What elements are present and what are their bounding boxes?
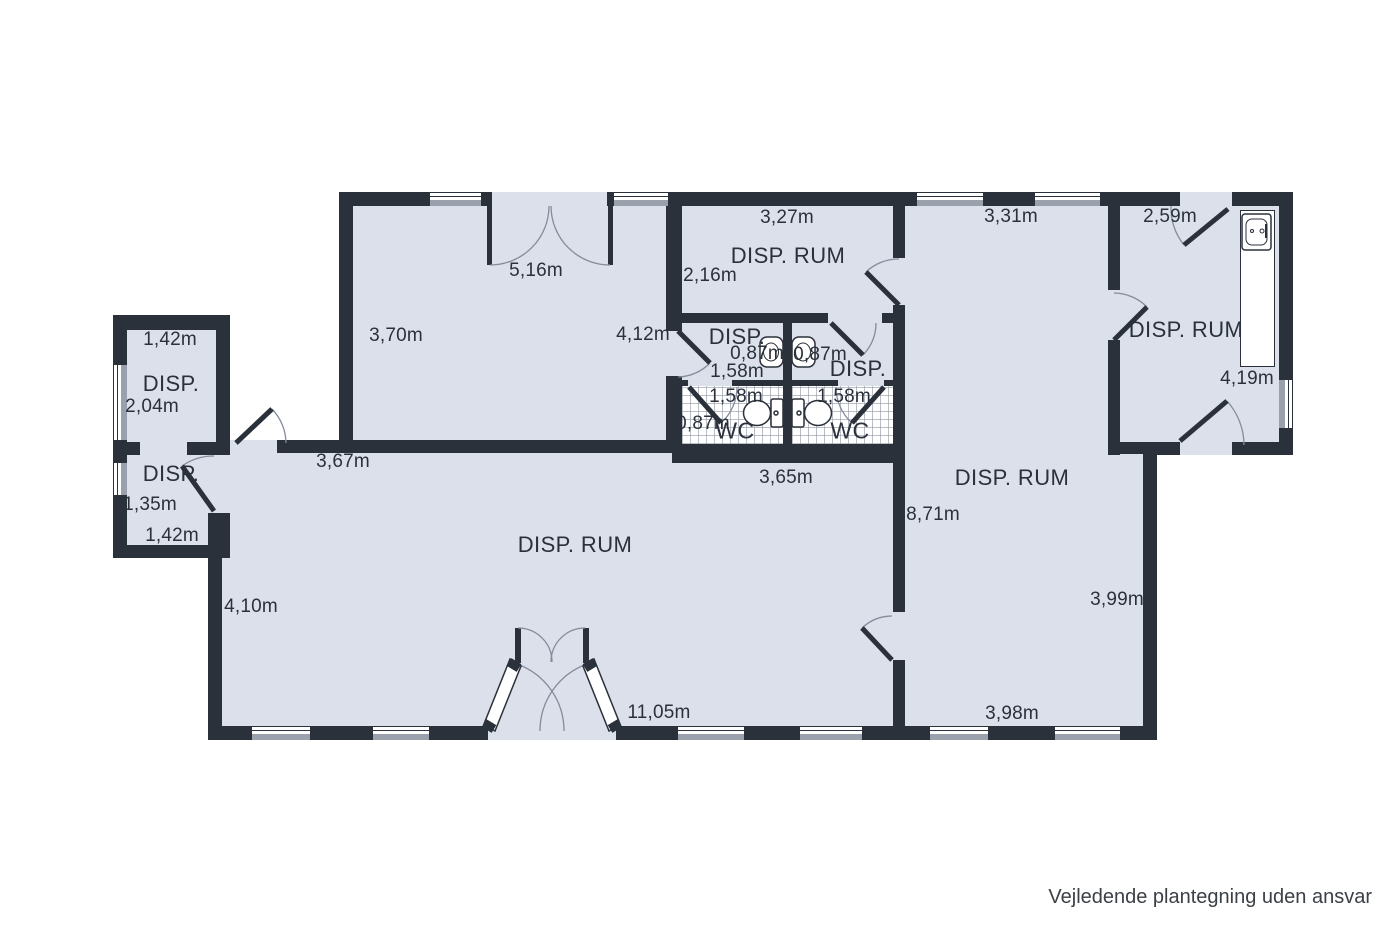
door-opening <box>1108 290 1120 340</box>
dim-wc-left-depth: 1,58m <box>709 386 763 408</box>
wall <box>113 440 127 463</box>
counter <box>1240 210 1275 367</box>
dim-annex1-width: 1,42m <box>143 329 197 351</box>
door-leaf-open <box>487 206 492 265</box>
dim-vest-left-depth: 1,58m <box>710 361 764 383</box>
wall <box>127 442 140 455</box>
wall <box>339 192 353 453</box>
dim-hall-door: 5,16m <box>509 260 563 282</box>
window <box>113 463 127 495</box>
wall <box>783 386 792 444</box>
dim-wc-bottom: 3,65m <box>759 467 813 489</box>
wall <box>680 192 905 206</box>
dim-tr-right: 4,19m <box>1220 368 1274 390</box>
window <box>1055 726 1120 740</box>
door-opening <box>1180 192 1232 206</box>
window <box>614 192 668 206</box>
door-opening <box>492 192 607 206</box>
dim-main-bottom: 11,05m <box>627 702 690 724</box>
wall <box>187 442 230 455</box>
dim-mid-left: 2,16m <box>683 265 737 287</box>
window <box>678 726 744 740</box>
dim-hall-bottom: 3,67m <box>316 451 370 473</box>
door-opening <box>1180 442 1232 455</box>
window <box>800 726 862 740</box>
dim-annex2-width: 1,42m <box>145 525 199 547</box>
dim-wc-right-depth: 1,58m <box>817 386 871 408</box>
room-label-top-right: DISP. RUM <box>1129 317 1243 343</box>
door-post <box>583 628 589 663</box>
room-label-wc-left: WC <box>715 418 754 445</box>
window <box>917 192 983 206</box>
door-post <box>515 628 521 663</box>
wall <box>216 315 230 455</box>
dim-hall-right: 4,12m <box>616 324 670 346</box>
dim-right-right: 3,99m <box>1090 589 1144 611</box>
dim-right-bottom: 3,98m <box>985 703 1039 725</box>
dim-annex1-height: 2,04m <box>125 396 179 418</box>
dim-main-left: 4,10m <box>224 596 278 618</box>
wall <box>208 513 222 740</box>
wall <box>680 313 828 323</box>
window <box>430 192 481 206</box>
wall <box>783 323 792 386</box>
room-label-right: DISP. RUM <box>955 465 1069 491</box>
wall <box>113 315 230 330</box>
dim-right-left: 8,71m <box>906 504 960 526</box>
window <box>1035 192 1100 206</box>
room-label-annex1: DISP. <box>143 371 200 397</box>
window <box>1279 380 1293 428</box>
disclaimer-text: Vejledende plantegning uden ansvar <box>1048 886 1372 909</box>
floor-plan: 1,42m DISP. 2,04m DISP. 1,35m 1,42m 5,16… <box>0 0 1400 933</box>
wall <box>1143 442 1157 740</box>
dim-right-top: 3,31m <box>984 206 1038 228</box>
room-label-vest-right: DISP. <box>830 356 887 382</box>
door-leaf-open <box>608 206 613 265</box>
entrance-opening <box>488 726 616 740</box>
room-fill-hall <box>339 192 680 453</box>
wall <box>113 330 127 367</box>
window <box>930 726 988 740</box>
door-opening <box>893 612 905 660</box>
room-label-main: DISP. RUM <box>518 532 632 558</box>
dim-mid-top: 3,27m <box>760 207 814 229</box>
window <box>252 726 310 740</box>
door-opening <box>893 258 905 305</box>
dim-annex2-height: 1,35m <box>123 494 177 516</box>
window <box>373 726 429 740</box>
dim-tr-top: 2,59m <box>1143 206 1197 228</box>
room-label-annex2: DISP. <box>143 461 200 487</box>
dim-hall-left: 3,70m <box>369 325 423 347</box>
room-label-wc-right: WC <box>830 418 869 445</box>
room-label-mid: DISP. RUM <box>731 243 845 269</box>
